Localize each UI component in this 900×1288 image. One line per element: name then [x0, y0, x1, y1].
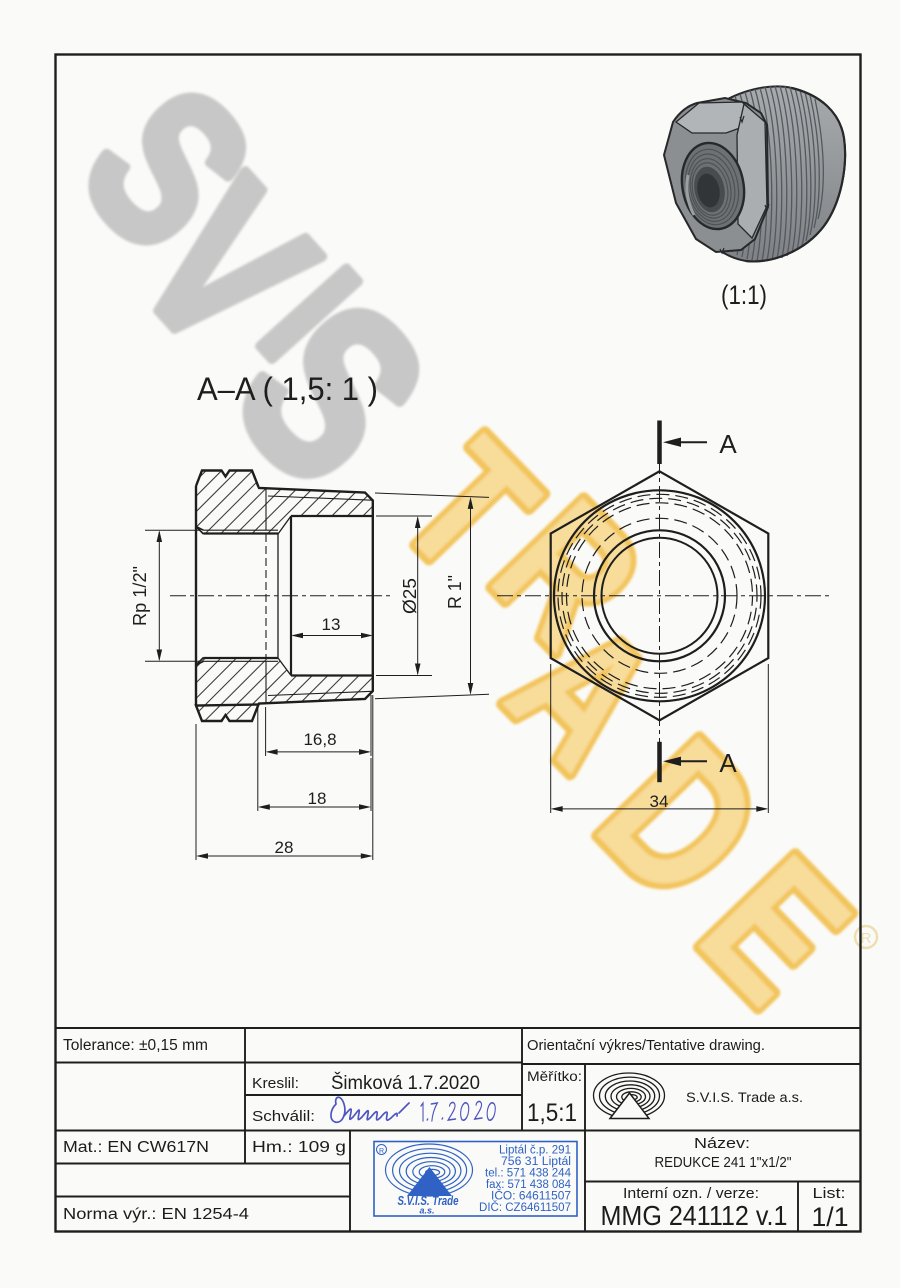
svg-text:18: 18: [308, 789, 327, 808]
svg-text:Ø25: Ø25: [400, 578, 420, 614]
svg-text:R: R: [861, 930, 872, 947]
svg-text:IČO: 64611507: IČO: 64611507: [491, 1190, 571, 1203]
svg-text:R 1": R 1": [445, 575, 465, 609]
svg-text:13: 13: [322, 615, 341, 634]
svg-text:R: R: [379, 1148, 384, 1155]
svg-text:S.V.I.S. Trade a.s.: S.V.I.S. Trade a.s.: [686, 1090, 803, 1105]
svg-text:16,8: 16,8: [303, 730, 336, 749]
svg-text:REDUKCE 241 1"x1/2": REDUKCE 241 1"x1/2": [655, 1155, 792, 1171]
svg-text:Tolerance: ±0,15 mm: Tolerance: ±0,15 mm: [63, 1037, 208, 1054]
svg-text:(1:1): (1:1): [721, 280, 767, 310]
svg-text:MMG 241112 v.1: MMG 241112 v.1: [601, 1200, 788, 1231]
svg-text:Orientační výkres/Tentative dr: Orientační výkres/Tentative drawing.: [527, 1038, 765, 1054]
svg-text:1/1: 1/1: [812, 1202, 849, 1232]
svg-text:A–A ( 1,5: 1 ): A–A ( 1,5: 1 ): [197, 371, 378, 407]
svg-text:1,5:1: 1,5:1: [527, 1099, 577, 1127]
svg-text:Norma výr.: EN 1254-4: Norma výr.: EN 1254-4: [63, 1206, 249, 1223]
svg-text:Liptál č.p. 291: Liptál č.p. 291: [499, 1145, 571, 1157]
svg-text:28: 28: [275, 838, 294, 857]
svg-text:DIČ: CZ64611507: DIČ: CZ64611507: [479, 1201, 571, 1214]
svg-text:Rp 1/2": Rp 1/2": [130, 566, 150, 626]
svg-text:756 31 Liptál: 756 31 Liptál: [501, 1156, 571, 1168]
svg-text:Šimková 1.7.2020: Šimková 1.7.2020: [331, 1071, 480, 1094]
svg-text:A: A: [719, 429, 737, 459]
svg-text:Měřítko:: Měřítko:: [527, 1069, 582, 1084]
svg-text:Kreslil:: Kreslil:: [252, 1075, 299, 1092]
svg-text:fax: 571 438 084: fax: 571 438 084: [486, 1179, 572, 1191]
svg-text:A: A: [719, 748, 737, 778]
svg-text:Hm.: 109 g: Hm.: 109 g: [252, 1139, 346, 1156]
svg-text:a.s.: a.s.: [419, 1206, 434, 1216]
svg-text:tel.: 571 438 244: tel.: 571 438 244: [485, 1168, 572, 1180]
svg-text:Název:: Název:: [694, 1136, 750, 1152]
svg-text:List:: List:: [813, 1186, 846, 1202]
svg-text:Schválil:: Schválil:: [252, 1108, 315, 1125]
svg-text:34: 34: [650, 792, 669, 811]
svg-text:Mat.: EN CW617N: Mat.: EN CW617N: [63, 1139, 209, 1156]
